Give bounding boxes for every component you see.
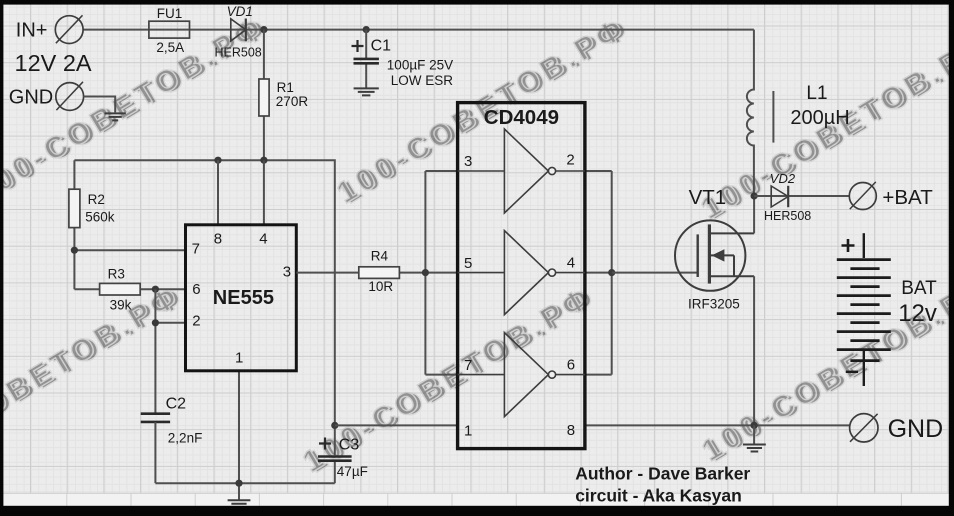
svg-text:12v: 12v <box>898 300 937 327</box>
svg-text:IRF3205: IRF3205 <box>688 296 740 311</box>
svg-text:circuit - Aka Kasyan: circuit - Aka Kasyan <box>575 486 742 506</box>
svg-text:1: 1 <box>464 423 472 440</box>
svg-text:R3: R3 <box>108 266 125 281</box>
svg-text:6: 6 <box>192 281 200 298</box>
svg-text:5: 5 <box>464 255 472 272</box>
svg-text:VD1: VD1 <box>227 4 253 19</box>
svg-text:4: 4 <box>567 255 575 272</box>
svg-text:39k: 39k <box>110 297 132 312</box>
svg-text:3: 3 <box>283 263 291 280</box>
svg-text:C1: C1 <box>371 38 392 55</box>
svg-text:1: 1 <box>235 349 243 366</box>
svg-text:GND: GND <box>888 415 944 443</box>
svg-text:HER508: HER508 <box>764 209 811 223</box>
svg-text:47µF: 47µF <box>337 464 368 479</box>
svg-text:10R: 10R <box>368 279 393 294</box>
svg-text:CD4049: CD4049 <box>484 106 559 129</box>
svg-text:12V 2A: 12V 2A <box>15 50 92 76</box>
svg-text:C2: C2 <box>166 395 187 412</box>
svg-text:R1: R1 <box>277 80 294 95</box>
svg-text:100µF 25V: 100µF 25V <box>387 58 453 73</box>
svg-text:GND: GND <box>9 87 53 109</box>
svg-text:R2: R2 <box>88 192 105 207</box>
svg-text:IN+: IN+ <box>16 20 48 42</box>
svg-text:LOW ESR: LOW ESR <box>391 73 454 88</box>
svg-text:2,2nF: 2,2nF <box>168 430 203 445</box>
svg-text:HER508: HER508 <box>215 45 262 59</box>
svg-text:7: 7 <box>464 357 472 374</box>
svg-text:3: 3 <box>464 153 472 170</box>
svg-text:R4: R4 <box>371 249 389 264</box>
svg-text:6: 6 <box>567 357 575 374</box>
svg-text:BAT: BAT <box>901 278 937 299</box>
svg-text:2,5A: 2,5A <box>156 40 184 55</box>
svg-text:Author - Dave Barker: Author - Dave Barker <box>575 464 750 484</box>
svg-text:2: 2 <box>192 313 200 330</box>
svg-text:200µH: 200µH <box>790 107 849 129</box>
svg-text:7: 7 <box>192 240 200 257</box>
svg-text:NE555: NE555 <box>213 287 274 309</box>
svg-text:560k: 560k <box>85 210 115 225</box>
svg-text:270R: 270R <box>276 94 309 109</box>
svg-text:2: 2 <box>566 151 574 168</box>
svg-text:C3: C3 <box>339 436 360 453</box>
svg-text:L1: L1 <box>806 83 827 104</box>
svg-text:4: 4 <box>259 231 267 248</box>
svg-text:FU1: FU1 <box>157 6 183 21</box>
svg-text:VT1: VT1 <box>689 186 727 209</box>
svg-text:+BAT: +BAT <box>882 186 933 209</box>
svg-text:VD2: VD2 <box>770 171 796 186</box>
svg-text:8: 8 <box>214 231 222 248</box>
svg-text:8: 8 <box>567 422 575 439</box>
